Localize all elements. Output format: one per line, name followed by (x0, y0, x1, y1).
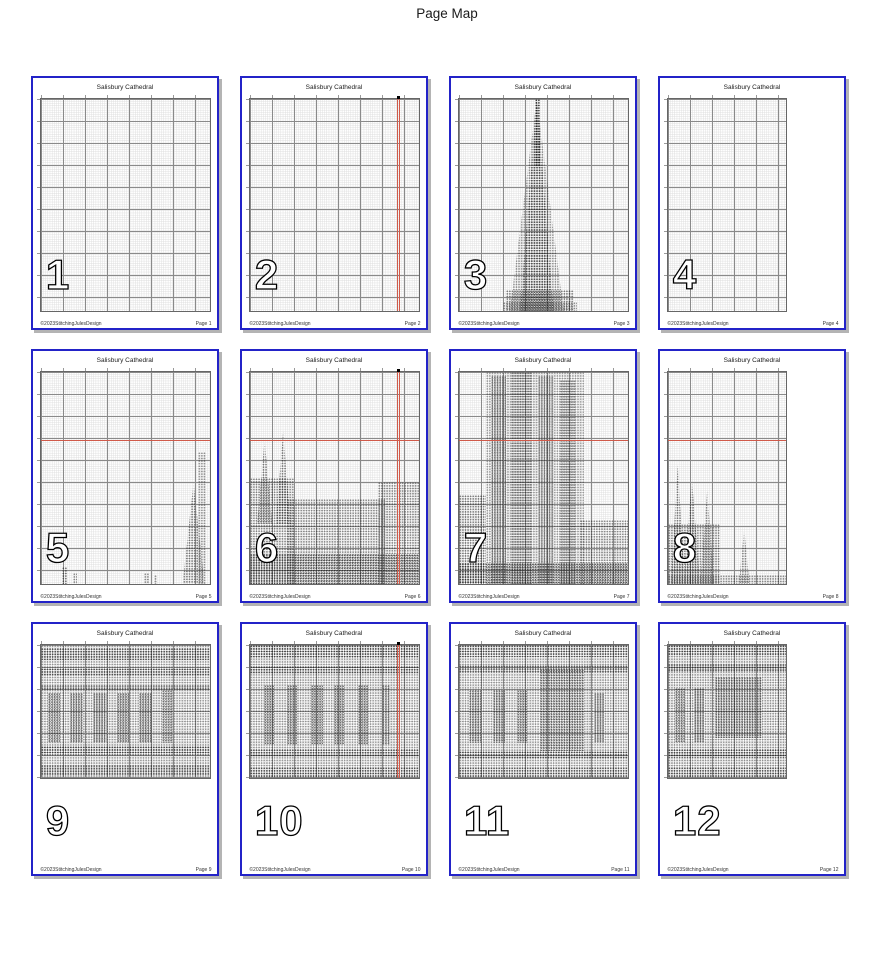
page-number-overlay: 2 (255, 254, 279, 296)
copyright-text: ©2023StitchingJulesDesign (40, 867, 101, 873)
stitch-cluster (311, 685, 323, 745)
column-tick-marks (668, 95, 786, 98)
column-tick-marks (250, 95, 418, 98)
page-footer: ©2023StitchingJulesDesign Page 4 (667, 321, 838, 327)
copyright-text: ©2023StitchingJulesDesign (249, 867, 310, 873)
center-line-marker (397, 642, 400, 645)
page-number-overlay: 1 (46, 254, 70, 296)
stitch-cluster (694, 688, 703, 744)
page-number-overlay: 5 (46, 527, 70, 569)
stitch-cluster (517, 690, 529, 743)
stitch-cluster (48, 693, 60, 744)
row-tick-marks (455, 645, 458, 778)
row-tick-marks (455, 372, 458, 584)
column-tick-marks (250, 641, 418, 644)
stitch-cluster (41, 746, 209, 755)
pattern-title: Salisbury Cathedral (451, 630, 635, 637)
pattern-page[interactable]: Salisbury Cathedral 6 ©2023StitchingJule… (240, 349, 428, 603)
row-tick-marks (246, 372, 249, 584)
row-tick-marks (664, 99, 667, 311)
pattern-page[interactable]: Salisbury Cathedral 3 ©2023StitchingJule… (449, 76, 637, 330)
stitch-cluster (540, 669, 584, 751)
stitch-cluster (154, 575, 157, 583)
stitch-cluster (459, 645, 627, 657)
column-tick-marks (250, 368, 418, 371)
stitch-cluster (469, 690, 481, 743)
stitch-cluster (459, 751, 627, 759)
pattern-page[interactable]: Salisbury Cathedral 11 ©2023StitchingJul… (449, 622, 637, 876)
center-line-horizontal (459, 440, 627, 441)
stitch-cluster (287, 685, 297, 745)
pattern-title: Salisbury Cathedral (660, 630, 844, 637)
copyright-text: ©2023StitchingJulesDesign (667, 321, 728, 327)
page-footer: ©2023StitchingJulesDesign Page 3 (458, 321, 629, 327)
stitch-cluster (668, 645, 786, 656)
center-line-horizontal (250, 440, 418, 441)
pattern-page[interactable]: Salisbury Cathedral 2 ©2023StitchingJule… (240, 76, 428, 330)
stitch-cluster (358, 685, 368, 745)
stitch-cluster (382, 685, 390, 745)
stitch-cluster (334, 685, 344, 745)
column-tick-marks (459, 641, 627, 644)
copyright-text: ©2023StitchingJulesDesign (458, 867, 519, 873)
stitch-cluster (491, 376, 506, 584)
pattern-title: Salisbury Cathedral (242, 630, 426, 637)
page-footer: ©2023StitchingJulesDesign Page 12 (667, 867, 838, 873)
page-number-overlay: 8 (673, 527, 697, 569)
page-footer-label: Page 8 (823, 594, 839, 600)
page-footer-label: Page 10 (402, 867, 421, 873)
pattern-title: Salisbury Cathedral (33, 357, 217, 364)
stitch-cluster (198, 452, 206, 583)
pattern-title: Salisbury Cathedral (33, 630, 217, 637)
stitch-cluster (250, 666, 418, 674)
stitch-cluster (560, 380, 575, 583)
page-number-overlay: 6 (255, 527, 279, 569)
pattern-page[interactable]: Salisbury Cathedral 1 ©2023StitchingJule… (31, 76, 219, 330)
stitch-cluster (250, 767, 418, 778)
copyright-text: ©2023StitchingJulesDesign (40, 321, 101, 327)
pattern-page[interactable]: Salisbury Cathedral 5 ©2023StitchingJule… (31, 349, 219, 603)
stitch-cluster (70, 693, 83, 744)
center-line-horizontal (668, 440, 786, 441)
pattern-page[interactable]: Salisbury Cathedral 9 ©2023StitchingJule… (31, 622, 219, 876)
stitch-cluster (93, 693, 106, 744)
center-line-vertical (397, 645, 400, 778)
page-footer-label: Page 3 (614, 321, 630, 327)
column-tick-marks (668, 641, 786, 644)
stitch-cluster (41, 648, 209, 660)
pattern-page[interactable]: Salisbury Cathedral 8 ©2023StitchingJule… (658, 349, 846, 603)
page-footer-label: Page 11 (611, 867, 629, 873)
stitch-cluster (538, 376, 553, 584)
stitch-cluster (668, 767, 786, 778)
page-footer-label: Page 9 (196, 867, 212, 873)
stitch-cluster (459, 767, 627, 778)
column-tick-marks (459, 95, 627, 98)
pattern-title: Salisbury Cathedral (242, 357, 426, 364)
stitch-cluster (250, 645, 418, 658)
page-footer: ©2023StitchingJulesDesign Page 7 (458, 594, 629, 600)
stitch-cluster (73, 573, 76, 584)
stitch-cluster (41, 765, 209, 776)
column-tick-marks (459, 368, 627, 371)
column-tick-marks (41, 368, 209, 371)
stitch-cluster (668, 664, 786, 672)
stitch-cluster (535, 99, 540, 167)
pattern-title: Salisbury Cathedral (451, 357, 635, 364)
center-line-vertical (397, 372, 400, 584)
page-number-overlay: 3 (464, 254, 488, 296)
pattern-title: Salisbury Cathedral (660, 84, 844, 91)
page-footer-label: Page 2 (405, 321, 421, 327)
pattern-title: Salisbury Cathedral (242, 84, 426, 91)
page-footer: ©2023StitchingJulesDesign Page 10 (249, 867, 420, 873)
copyright-text: ©2023StitchingJulesDesign (458, 321, 519, 327)
stitch-cluster (675, 688, 684, 744)
page-footer-label: Page 5 (196, 594, 212, 600)
row-tick-marks (664, 372, 667, 584)
page-map-title: Page Map (0, 6, 894, 21)
row-tick-marks (37, 372, 40, 584)
center-line-horizontal (41, 440, 209, 441)
page-footer-label: Page 7 (614, 594, 630, 600)
page-footer: ©2023StitchingJulesDesign Page 11 (458, 867, 629, 873)
stitch-cluster (668, 749, 786, 758)
stitch-grid (458, 644, 628, 779)
center-line-marker (397, 369, 400, 372)
stitch-cluster (162, 690, 172, 743)
row-tick-marks (664, 645, 667, 778)
row-tick-marks (246, 645, 249, 778)
row-tick-marks (37, 645, 40, 778)
page-footer: ©2023StitchingJulesDesign Page 9 (40, 867, 211, 873)
center-line-marker (397, 96, 400, 99)
page-footer: ©2023StitchingJulesDesign Page 1 (40, 321, 211, 327)
pattern-title: Salisbury Cathedral (451, 84, 635, 91)
pattern-page[interactable]: Salisbury Cathedral 10 ©2023StitchingJul… (240, 622, 428, 876)
column-tick-marks (41, 95, 209, 98)
stitch-cluster (715, 677, 762, 738)
page-footer-label: Page 12 (820, 867, 839, 873)
column-tick-marks (668, 368, 786, 371)
stitch-cluster (264, 685, 274, 745)
row-tick-marks (455, 99, 458, 311)
column-tick-marks (41, 641, 209, 644)
copyright-text: ©2023StitchingJulesDesign (249, 321, 310, 327)
copyright-text: ©2023StitchingJulesDesign (667, 867, 728, 873)
stitch-cluster (250, 749, 418, 757)
page-number-overlay: 12 (673, 800, 722, 842)
page-grid: Salisbury Cathedral 1 ©2023StitchingJule… (31, 76, 846, 876)
page-footer-label: Page 6 (405, 594, 421, 600)
stitch-cluster (144, 573, 149, 584)
stitch-cluster (139, 693, 152, 744)
page-footer-label: Page 1 (196, 321, 212, 327)
stitch-cluster (41, 685, 209, 690)
pattern-page[interactable]: Salisbury Cathedral 12 ©2023StitchingJul… (658, 622, 846, 876)
row-tick-marks (37, 99, 40, 311)
pattern-page[interactable]: Salisbury Cathedral 7 ©2023StitchingJule… (449, 349, 637, 603)
page-footer: ©2023StitchingJulesDesign Page 6 (249, 594, 420, 600)
page-footer: ©2023StitchingJulesDesign Page 5 (40, 594, 211, 600)
stitch-cluster (503, 302, 577, 310)
stitch-grid (40, 644, 210, 779)
stitch-cluster (668, 575, 786, 583)
stitch-cluster (511, 372, 531, 584)
copyright-text: ©2023StitchingJulesDesign (667, 594, 728, 600)
stitch-cluster (117, 693, 129, 744)
page-footer: ©2023StitchingJulesDesign Page 8 (667, 594, 838, 600)
row-tick-marks (246, 99, 249, 311)
page-number-overlay: 10 (255, 800, 304, 842)
copyright-text: ©2023StitchingJulesDesign (40, 594, 101, 600)
copyright-text: ©2023StitchingJulesDesign (249, 594, 310, 600)
stitch-grid (249, 644, 419, 779)
stitch-grid (667, 644, 787, 779)
pattern-title: Salisbury Cathedral (33, 84, 217, 91)
center-line-vertical (397, 99, 400, 311)
pattern-page[interactable]: Salisbury Cathedral 4 ©2023StitchingJule… (658, 76, 846, 330)
stitch-cluster (594, 693, 604, 744)
stitch-cluster (493, 690, 505, 743)
pattern-title: Salisbury Cathedral (660, 357, 844, 364)
page-number-overlay: 7 (464, 527, 488, 569)
page-number-overlay: 4 (673, 254, 697, 296)
page-footer: ©2023StitchingJulesDesign Page 2 (249, 321, 420, 327)
stitch-cluster (41, 668, 209, 676)
page-number-overlay: 9 (46, 800, 70, 842)
page-number-overlay: 11 (464, 800, 510, 842)
page-footer-label: Page 4 (823, 321, 839, 327)
copyright-text: ©2023StitchingJulesDesign (458, 594, 519, 600)
